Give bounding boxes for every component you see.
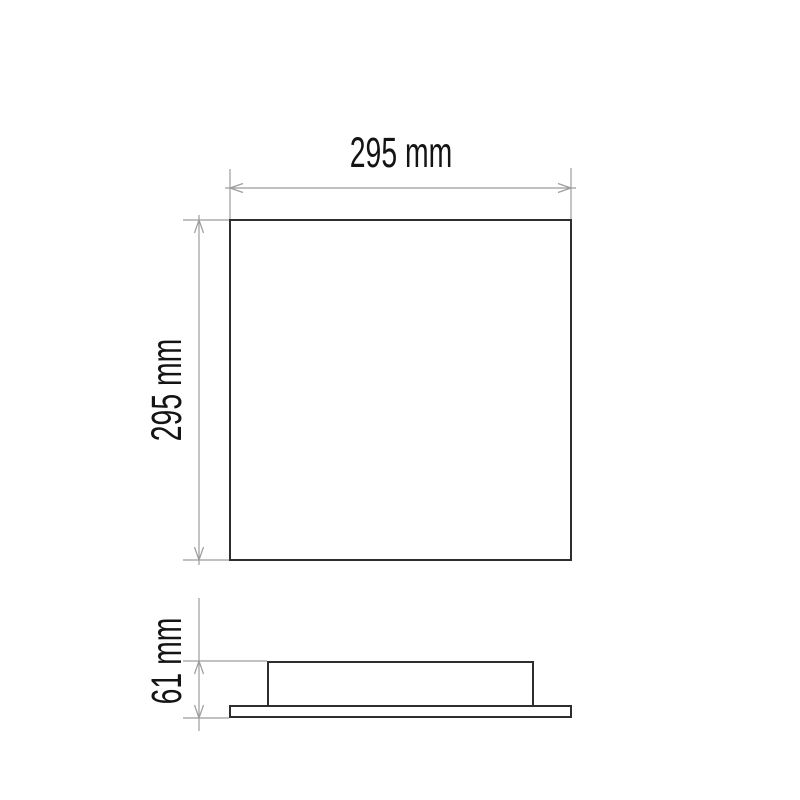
panel-housing-profile <box>268 662 533 706</box>
top-view <box>230 220 571 560</box>
dimension-width-label: 295 mm <box>350 128 453 176</box>
dimension-drawing: 295 mm 295 mm 61 mm <box>0 0 800 800</box>
side-view <box>230 662 571 717</box>
dimension-height-label: 295 mm <box>142 339 190 442</box>
panel-base-profile <box>230 706 571 717</box>
drawing-svg: 295 mm 295 mm 61 mm <box>0 0 800 800</box>
dimension-depth-label: 61 mm <box>142 618 190 705</box>
panel-front-outline <box>230 220 571 560</box>
